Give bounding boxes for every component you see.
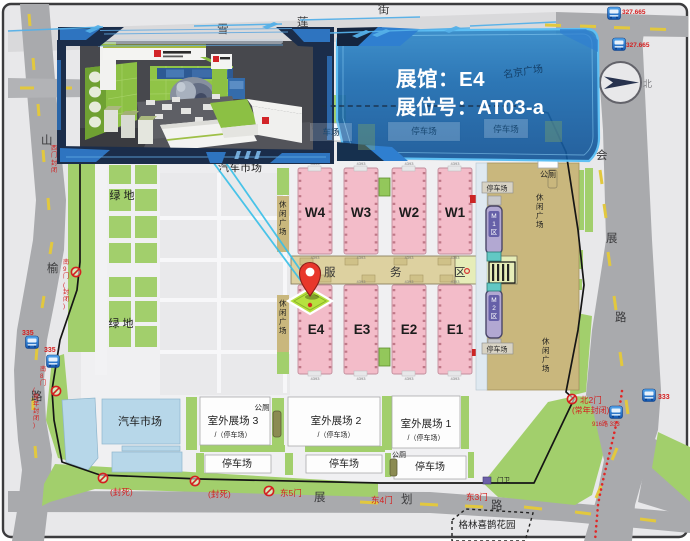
- svg-text:绿 地: 绿 地: [109, 188, 134, 202]
- svg-text:封: 封: [33, 407, 39, 415]
- svg-text:4393: 4393: [405, 255, 415, 260]
- svg-text:): ): [33, 422, 35, 429]
- svg-text:区: 区: [491, 312, 498, 320]
- svg-text:4393: 4393: [451, 279, 461, 284]
- svg-text:E4: E4: [308, 322, 325, 337]
- svg-text:闭: 闭: [63, 295, 69, 303]
- svg-text:4393: 4393: [405, 161, 415, 166]
- svg-text:休: 休: [279, 298, 287, 308]
- svg-text:公厕: 公厕: [392, 451, 406, 459]
- svg-text:车场: 车场: [322, 127, 339, 137]
- svg-text:4393: 4393: [357, 161, 367, 166]
- svg-text:场: 场: [279, 326, 287, 335]
- svg-text:333: 333: [658, 394, 670, 401]
- svg-text:4393: 4393: [357, 376, 367, 381]
- svg-text:停车场: 停车场: [411, 126, 437, 136]
- svg-text:停车场: 停车场: [329, 457, 359, 470]
- svg-text:东5门: 东5门: [280, 488, 302, 498]
- svg-text:休: 休: [279, 199, 287, 209]
- svg-text:4393: 4393: [451, 376, 461, 381]
- svg-text:区: 区: [454, 267, 466, 279]
- svg-text:闲: 闲: [536, 202, 544, 211]
- svg-text:): ): [63, 303, 65, 310]
- svg-text:W2: W2: [399, 205, 419, 220]
- svg-text:闭: 闭: [51, 166, 57, 174]
- svg-text:327.665: 327.665: [626, 42, 650, 49]
- svg-text:划: 划: [401, 493, 413, 506]
- svg-text:绿 地: 绿 地: [108, 316, 133, 330]
- svg-text:4393: 4393: [451, 255, 461, 260]
- svg-text:/（停车场）: /（停车场）: [215, 430, 252, 439]
- svg-text:南: 南: [63, 258, 69, 266]
- svg-text:M: M: [491, 213, 496, 220]
- svg-text:4393: 4393: [357, 279, 367, 284]
- svg-text:闲: 闲: [279, 209, 287, 218]
- svg-text:区: 区: [491, 228, 498, 236]
- svg-text:广: 广: [279, 217, 287, 227]
- svg-text:常: 常: [33, 393, 39, 401]
- svg-text:/（停车场）: /（停车场）: [318, 430, 355, 439]
- svg-text:封: 封: [51, 159, 57, 167]
- svg-text:展: 展: [314, 491, 326, 504]
- svg-text:场: 场: [279, 227, 287, 236]
- svg-text:门: 门: [40, 379, 46, 387]
- svg-text:门卫: 门卫: [497, 475, 511, 484]
- svg-text:(常年封闭): (常年封闭): [572, 405, 610, 415]
- svg-text:9: 9: [63, 266, 67, 273]
- svg-text:服: 服: [324, 266, 336, 279]
- svg-text:汽车市场: 汽车市场: [118, 414, 162, 428]
- svg-text:4393: 4393: [405, 279, 415, 284]
- svg-text:休: 休: [542, 336, 550, 346]
- svg-text:停车场: 停车场: [487, 345, 508, 354]
- svg-text:北2门: 北2门: [580, 395, 602, 405]
- svg-text:展: 展: [606, 232, 618, 245]
- svg-text:E1: E1: [447, 322, 464, 337]
- svg-text:北: 北: [643, 79, 652, 89]
- svg-text:门: 门: [63, 272, 69, 280]
- svg-text:榆: 榆: [47, 261, 59, 275]
- svg-text:E3: E3: [354, 322, 371, 337]
- svg-text:4393: 4393: [311, 376, 321, 381]
- svg-text:西: 西: [51, 145, 57, 152]
- svg-text:335: 335: [44, 347, 56, 354]
- svg-text:1: 1: [492, 221, 496, 228]
- svg-text:停车场: 停车场: [493, 124, 519, 134]
- svg-text:公厕: 公厕: [255, 403, 270, 412]
- svg-text:街: 街: [378, 2, 390, 16]
- svg-text:W1: W1: [445, 205, 466, 220]
- svg-text:场: 场: [542, 364, 550, 373]
- svg-text:(封死): (封死): [110, 487, 133, 497]
- svg-text:展馆：E4: 展馆：E4: [396, 67, 485, 91]
- svg-text:年: 年: [33, 400, 39, 408]
- svg-text:广: 广: [536, 210, 544, 220]
- svg-text:327.665: 327.665: [622, 9, 646, 16]
- svg-text:东4门: 东4门: [371, 495, 393, 505]
- svg-text:广: 广: [279, 316, 287, 326]
- svg-text:室外展场 3: 室外展场 3: [208, 414, 259, 427]
- svg-text:停车场: 停车场: [222, 457, 252, 470]
- svg-text:916路 333: 916路 333: [592, 420, 620, 428]
- svg-text:8: 8: [40, 373, 44, 380]
- svg-text:公厕: 公厕: [540, 170, 556, 179]
- svg-text:W3: W3: [351, 205, 372, 220]
- svg-text:闭: 闭: [33, 414, 39, 422]
- svg-text:场: 场: [536, 220, 544, 229]
- svg-text:室外展场 2: 室外展场 2: [311, 414, 362, 427]
- svg-text:/（停车场）: /（停车场）: [408, 433, 445, 442]
- svg-text:路: 路: [491, 498, 503, 512]
- svg-text:4393: 4393: [357, 255, 367, 260]
- svg-text:封: 封: [63, 288, 69, 296]
- svg-text:2: 2: [492, 305, 496, 312]
- svg-text:M: M: [491, 297, 496, 304]
- svg-text:停车场: 停车场: [487, 184, 508, 193]
- svg-text:4393: 4393: [451, 161, 461, 166]
- svg-text:展位号：AT03-a: 展位号：AT03-a: [396, 95, 545, 119]
- svg-text:4393: 4393: [405, 376, 415, 381]
- svg-text:务: 务: [390, 265, 402, 279]
- svg-text:4393: 4393: [311, 255, 321, 260]
- svg-text:南: 南: [40, 365, 46, 373]
- svg-text:E2: E2: [401, 322, 418, 337]
- svg-text:东3门: 东3门: [466, 492, 488, 502]
- svg-text:(封死): (封死): [208, 489, 231, 499]
- svg-text:会: 会: [596, 149, 608, 162]
- svg-text:休: 休: [536, 192, 544, 202]
- svg-text:格林喜鹊花园: 格林喜鹊花园: [458, 519, 515, 531]
- svg-text:路: 路: [615, 310, 627, 324]
- svg-text:停车场: 停车场: [415, 460, 445, 473]
- svg-text:室外展场 1: 室外展场 1: [401, 417, 452, 430]
- svg-text:W4: W4: [305, 205, 326, 220]
- svg-text:闲: 闲: [542, 346, 550, 355]
- svg-text:广: 广: [542, 354, 550, 364]
- svg-text:门: 门: [51, 151, 57, 159]
- svg-text:闲: 闲: [279, 308, 287, 317]
